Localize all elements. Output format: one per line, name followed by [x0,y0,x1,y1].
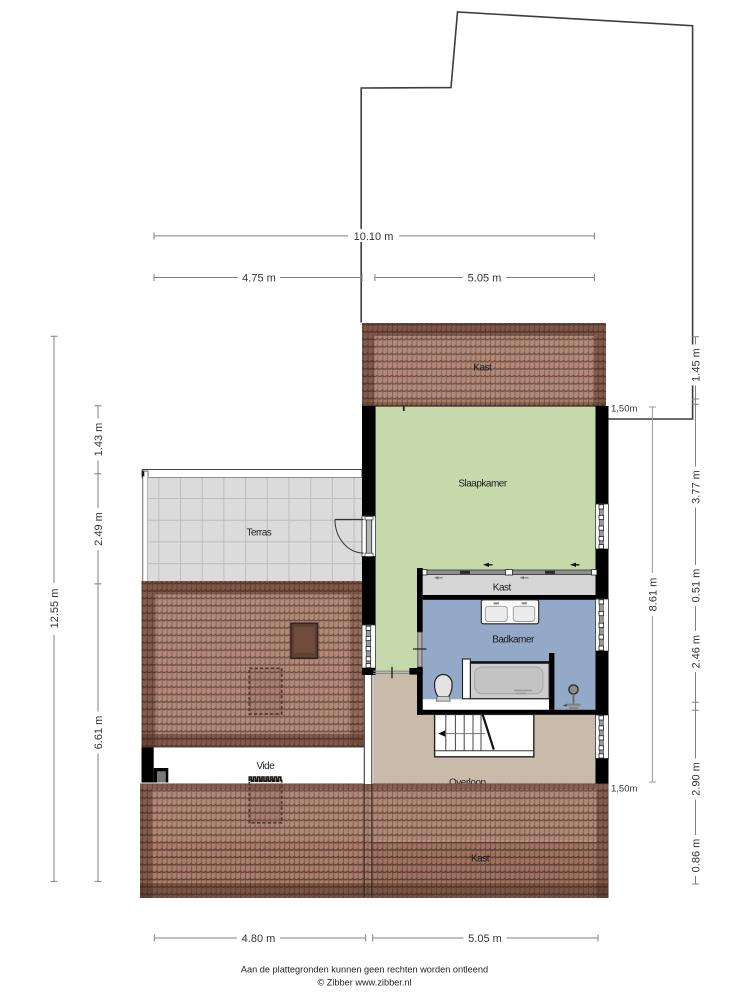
svg-text:Slaapkamer: Slaapkamer [458,478,508,489]
svg-text:0.51 m: 0.51 m [690,569,702,603]
svg-text:Kast: Kast [473,363,492,374]
svg-text:1,50m: 1,50m [611,404,637,415]
svg-text:1.43 m: 1.43 m [93,423,105,457]
svg-text:Vide: Vide [256,761,275,772]
svg-text:1.45 m: 1.45 m [690,348,702,382]
svg-text:4.75 m: 4.75 m [242,272,276,284]
svg-text:12.55 m: 12.55 m [49,589,61,629]
svg-text:1,50m: 1,50m [611,784,637,795]
svg-text:Terras: Terras [247,528,272,539]
svg-text:6.61 m: 6.61 m [93,716,105,750]
svg-text:Kast: Kast [471,854,490,865]
svg-text:Aan de plattegronden kunnen ge: Aan de plattegronden kunnen geen rechten… [241,965,488,975]
svg-text:4.80 m: 4.80 m [242,933,276,945]
svg-text:10.10 m: 10.10 m [354,231,394,243]
svg-text:Kast: Kast [493,582,512,593]
svg-text:0.86 m: 0.86 m [690,839,702,873]
svg-text:Badkamer: Badkamer [492,634,535,645]
svg-text:© Zibber www.zibber.nl: © Zibber www.zibber.nl [317,978,411,988]
svg-text:2.49 m: 2.49 m [93,512,105,546]
svg-text:5.05 m: 5.05 m [468,933,502,945]
svg-text:2.46 m: 2.46 m [690,635,702,669]
svg-text:8.61 m: 8.61 m [648,578,660,612]
svg-text:2.90 m: 2.90 m [690,762,702,796]
svg-text:5.05 m: 5.05 m [468,272,502,284]
svg-text:3.77 m: 3.77 m [690,470,702,504]
